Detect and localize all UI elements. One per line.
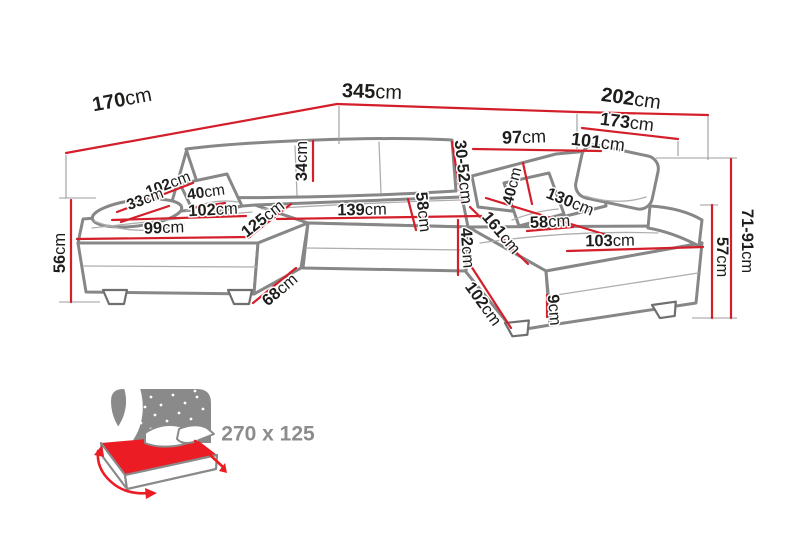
sleeping-area-size: 270 x 125 — [221, 423, 315, 446]
sofa-bed-icon — [94, 388, 227, 499]
mid-front-face — [303, 223, 468, 271]
dim-line-back-width — [337, 104, 577, 112]
sofa-leg — [228, 290, 252, 304]
diagram-canvas: 170cm 345cm 202cm 173cm 97cm 101cm 34cm … — [0, 0, 800, 533]
dim-label-headrest-range: 30-52cm — [451, 139, 476, 205]
dim-label-back-segment-left: 97cm — [502, 126, 547, 148]
dim-label-total-height: 71-91cm — [738, 209, 756, 273]
dim-label-right-seat-height: 57cm — [713, 237, 731, 277]
dim-label-back-width: 345cm — [342, 80, 403, 104]
dim-label-left-height: 56cm — [51, 233, 69, 273]
dim-label-mid-seat-width: 139cm — [337, 201, 387, 220]
dim-label-left-seat-width: 99cm — [144, 218, 185, 237]
dim-label-backrest-height: 34cm — [293, 141, 311, 181]
sofa-leg — [652, 302, 678, 319]
dim-label-seat-height: 42cm — [457, 227, 478, 269]
dim-label-left-seat-length: 102cm — [188, 200, 238, 221]
sofa-leg — [103, 290, 127, 304]
dim-label-left-depth: 170cm — [90, 84, 153, 117]
sofa-dimension-diagram: 170cm 345cm 202cm 173cm 97cm 101cm 34cm … — [0, 0, 800, 533]
dim-label-step-height: 9cm — [544, 294, 565, 327]
dim-label-right-seat-depth: 58cm — [529, 212, 570, 232]
dim-label-right-seat-length: 103cm — [585, 232, 635, 251]
left-front-face — [78, 243, 258, 294]
